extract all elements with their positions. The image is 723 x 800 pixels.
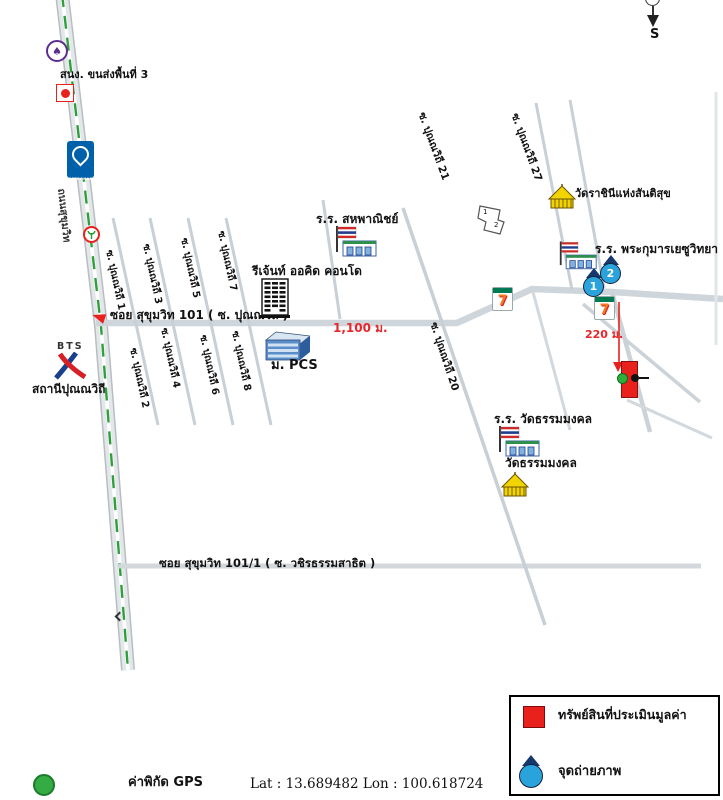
distance-220m-label: 220 ม. (585, 329, 623, 341)
seven-eleven-bend-icon: 7 (492, 287, 513, 311)
bend-side-lane (533, 292, 570, 430)
red-dot-icon (61, 89, 70, 98)
compass-needle (652, 6, 654, 15)
kasikorn-bank-logo-icon (83, 226, 100, 243)
legend: ทรัพย์สินที่ประเมินมูลค่า จุดถ่ายภาพ (509, 695, 720, 796)
legend-property-swatch (523, 706, 545, 728)
plot-outline (474, 204, 506, 238)
legend-photo-label: จุดถ่ายภาพ (558, 765, 621, 779)
map-canvas: S ♠ สนง. ขนส่งพื้นที่ 3 PETRONAS ถนนสุขุ… (0, 0, 723, 800)
school-holy-infant-jesus-icon (558, 241, 598, 271)
spade-glyph-icon: ♠ (52, 46, 62, 57)
road-network (0, 0, 723, 800)
point-tick-line (639, 377, 649, 379)
photo-point-2-number: 2 (600, 263, 621, 284)
seven-eleven-junction-icon: 7 (594, 296, 615, 320)
bts-logo-icon (52, 352, 88, 380)
compass-south-arrow-icon (647, 15, 659, 27)
pin-circle-icon (519, 764, 543, 788)
bts-logo-text: BTS (57, 342, 84, 352)
lower-diagonal-road (627, 400, 712, 438)
legend-property-label: ทรัพย์สินที่ประเมินมูลค่า (558, 708, 687, 722)
temple-wat-dhammamongkol-icon (498, 472, 532, 498)
plot-number-1: 1 (483, 209, 487, 217)
petronas-text: PETRONAS (69, 177, 93, 181)
legend-photo-pin-icon (519, 755, 543, 788)
petronas-station-icon: PETRONAS (67, 141, 94, 178)
temple-queen-of-peace-label: วัดราชินีแห่งสันติสุข (575, 188, 671, 200)
land-transport-logo-icon: ♠ (46, 40, 68, 62)
gps-label: ค่าพิกัด GPS (128, 776, 203, 790)
road-101-1-label: ซอย สุขุมวิท 101/1 ( ซ. วชิรธรรมสาธิต ) (159, 557, 375, 570)
gps-coordinates: Lat : 13.689482 Lon : 100.618724 (250, 777, 483, 792)
school-wat-dhammamongkol-icon (497, 426, 541, 458)
photo-point-marker-2: 2 (600, 255, 621, 284)
petronas-drop-icon (68, 142, 92, 166)
school-sahapanich-icon (334, 226, 378, 258)
school-sahapanich-label: ร.ร. สหพาณิชย์ (316, 213, 398, 226)
temple-queen-of-peace-icon (546, 184, 578, 210)
black-point-dot-icon (631, 374, 639, 382)
gps-point-dot-icon (617, 373, 628, 384)
bts-station-label: สถานีปุณณวิถี (32, 383, 105, 396)
plot-number-2: 2 (494, 222, 498, 230)
green-sprout-icon (87, 230, 96, 240)
temple-wat-dhammamongkol-label: วัดธรรมมงคล (505, 457, 577, 470)
red-dot-box-icon (56, 84, 74, 102)
pcs-label: ม. PCS (271, 359, 318, 373)
compass-south-label: S (650, 28, 659, 42)
seven-glyph: 7 (493, 293, 512, 310)
condo-regent-orchid-icon (260, 277, 290, 319)
seven-glyph: 7 (595, 302, 614, 319)
gps-green-dot-icon (33, 774, 55, 796)
distance-1100m-label: 1,100 ม. (333, 322, 388, 335)
school-wat-dhammamongkol-label: ร.ร. วัดธรรมมงคล (494, 413, 592, 426)
transport-office-label: สนง. ขนส่งพื้นที่ 3 (60, 69, 148, 81)
